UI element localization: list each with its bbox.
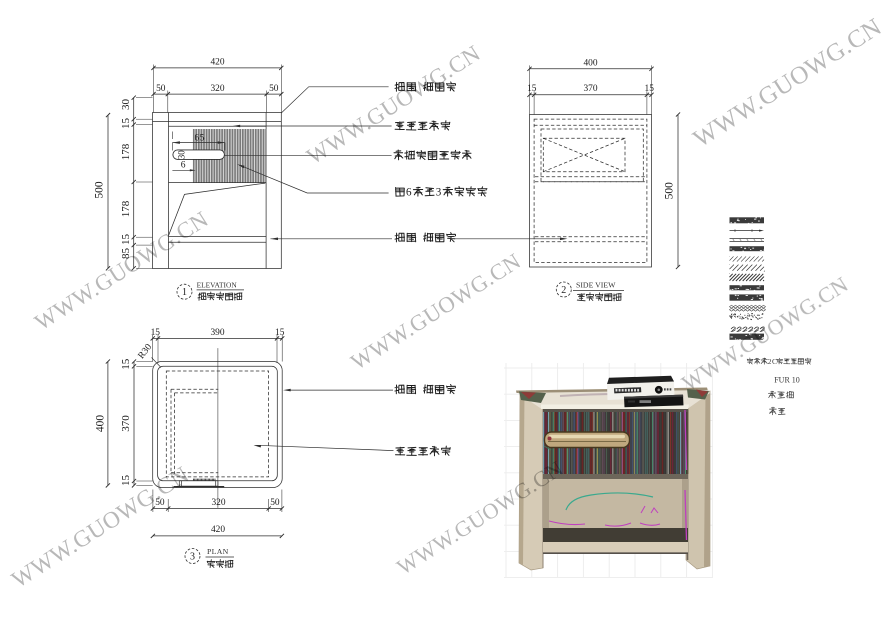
svg-text:178: 178	[120, 143, 132, 160]
svg-text:15: 15	[275, 328, 285, 338]
svg-text:400: 400	[95, 415, 107, 433]
svg-text:50: 50	[270, 498, 280, 508]
svg-text:5: 5	[200, 134, 205, 144]
svg-text:PLAN: PLAN	[207, 547, 229, 556]
svg-text:15: 15	[151, 328, 161, 338]
svg-text:15: 15	[120, 475, 132, 487]
svg-text:3: 3	[190, 551, 195, 562]
svg-text:420: 420	[210, 58, 224, 68]
svg-text:30: 30	[177, 150, 187, 160]
svg-text:30: 30	[120, 99, 132, 111]
svg-text:2: 2	[561, 285, 566, 296]
svg-text:15: 15	[645, 84, 655, 94]
svg-text:420: 420	[211, 525, 225, 535]
svg-text:50: 50	[156, 84, 166, 94]
svg-text:15: 15	[120, 358, 132, 370]
svg-text:15: 15	[120, 234, 132, 246]
svg-text:390: 390	[210, 328, 224, 338]
svg-text:15: 15	[527, 84, 537, 94]
svg-text:15: 15	[120, 118, 132, 130]
svg-text:6: 6	[181, 161, 186, 171]
svg-text:320: 320	[210, 84, 224, 94]
svg-text:SIDE VIEW: SIDE VIEW	[576, 281, 616, 290]
svg-text:178: 178	[120, 200, 132, 217]
svg-text:370: 370	[583, 84, 597, 94]
svg-text:6: 6	[406, 187, 412, 199]
svg-text:3: 3	[436, 187, 442, 199]
svg-text:500: 500	[663, 182, 675, 200]
svg-text:1: 1	[182, 287, 187, 298]
svg-text:500: 500	[93, 181, 105, 199]
svg-text:C: C	[772, 357, 777, 366]
svg-text:400: 400	[583, 58, 597, 68]
svg-text:50: 50	[269, 84, 279, 94]
svg-text:320: 320	[211, 498, 225, 508]
svg-text:ELEVATION: ELEVATION	[197, 280, 238, 289]
svg-text:FUR 10: FUR 10	[774, 376, 800, 385]
svg-text:370: 370	[120, 415, 132, 432]
